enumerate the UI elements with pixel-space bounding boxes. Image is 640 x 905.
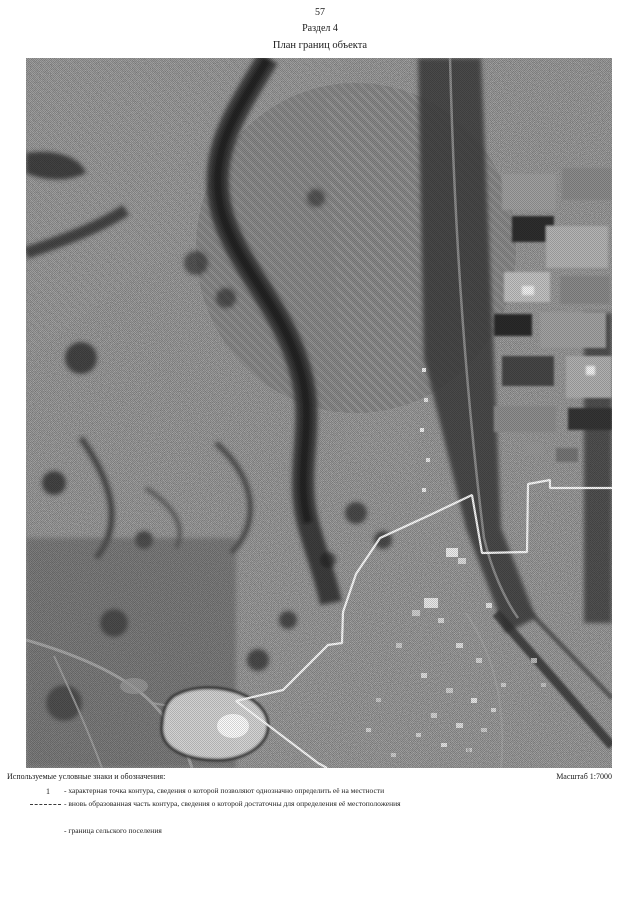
plan-title: План границ объекта xyxy=(0,40,640,51)
legend-item-text: - граница сельского поселения xyxy=(64,826,162,835)
aerial-photo-graphic xyxy=(26,58,612,768)
page-number: 57 xyxy=(0,7,640,18)
legend-heading: Используемые условные знаки и обозначени… xyxy=(7,772,165,781)
document-page: 57 Раздел 4 План границ объекта xyxy=(0,0,640,905)
legend-item-text: - вновь образованная часть контура, свед… xyxy=(64,799,401,808)
satellite-map-image xyxy=(26,58,612,768)
scale-label: Масштаб 1:7000 xyxy=(556,772,612,781)
legend-item-settlement-boundary: - граница сельского поселения xyxy=(64,826,162,837)
section-label: Раздел 4 xyxy=(0,23,640,34)
legend-item-new-contour-part: - вновь образованная часть контура, свед… xyxy=(64,799,409,810)
characteristic-point-symbol: 1 xyxy=(46,786,50,798)
legend-item-characteristic-point: 1 - характерная точка контура, сведения … xyxy=(64,786,384,797)
dashed-line-symbol xyxy=(30,804,61,805)
legend-item-text: - характерная точка контура, сведения о … xyxy=(64,786,384,795)
